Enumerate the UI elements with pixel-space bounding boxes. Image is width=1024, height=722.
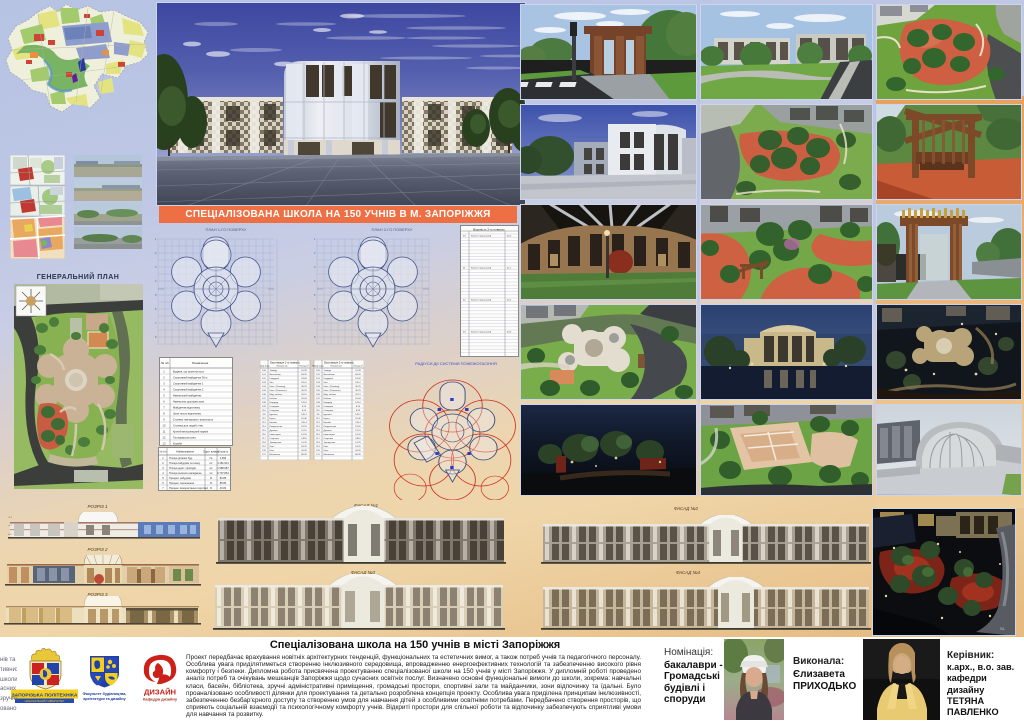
svg-text:10.20: 10.20 [355,434,361,436]
svg-text:20.15: 20.15 [355,394,361,396]
svg-text:2: 2 [314,252,316,255]
svg-text:Навчально-дослідна зона: Навчально-дослідна зона [173,399,204,403]
svg-text:Майданчик відпочинку: Майданчик відпочинку [173,405,201,409]
svg-text:Тамбур: Тамбур [270,370,278,372]
svg-text:Кабінет навчальний: Кабінет навчальний [471,235,492,238]
svg-text:Тамбур: Тамбур [324,370,332,372]
svg-text:145.2: 145.2 [355,414,361,416]
svg-text:Навчальний майданчик: Навчальний майданчик [173,393,202,397]
svg-text:54.20: 54.20 [355,446,361,448]
svg-text:Клумби: Клумби [173,441,183,445]
svg-text:Кабінет: Кабінет [324,397,332,400]
svg-text:Клас. (Логопед): Клас. (Логопед) [324,386,340,388]
svg-text:14.25: 14.25 [301,442,307,444]
svg-text:1 988.987: 1 988.987 [217,466,229,470]
svg-text:Їдальня: Їдальня [270,413,279,416]
svg-text:Клас. (Психолог): Клас. (Психолог) [270,390,287,392]
svg-text:Вестибюль: Вестибюль [270,374,282,376]
svg-text:7: 7 [314,322,316,325]
svg-text:84.26: 84.26 [355,374,361,376]
svg-text:Площа забудови по класу: Площа забудови по класу [169,461,201,465]
svg-text:7: 7 [155,322,157,325]
svg-text:52.40: 52.40 [355,418,361,420]
svg-text:+8.2: +8.2 [8,517,13,519]
svg-text:Їдальня: Їдальня [324,413,333,416]
svg-text:4 481.913: 4 481.913 [217,461,229,465]
svg-text:36.25: 36.25 [301,386,307,388]
svg-text:Факультет будівництва,: Факультет будівництва, [83,692,127,696]
svg-text:Санвузол: Санвузол [270,406,280,408]
svg-text:1: 1 [155,238,157,241]
svg-text:Роздягальня: Роздягальня [270,426,284,428]
svg-text:12.15: 12.15 [355,430,361,432]
svg-text:1: 1 [314,238,316,241]
svg-text:Процент забудови: Процент забудови [169,476,192,480]
svg-text:Інвентарна: Інвентарна [270,434,282,436]
svg-text:24.00: 24.00 [301,378,307,380]
svg-text:ДИЗАЙН: ДИЗАЙН [144,688,176,697]
svg-text:Площа доріг і проїздів: Площа доріг і проїздів [169,466,196,470]
svg-text:5: 5 [155,294,157,297]
svg-text:Площа зелених насаджень: Площа зелених насаджень [169,471,202,475]
svg-text:40.84: 40.84 [220,486,227,490]
svg-text:Басейн: Басейн [324,421,332,424]
svg-text:Стоянка для людей з інв.: Стоянка для людей з інв. [173,423,204,427]
svg-text:125.6: 125.6 [301,402,307,404]
svg-text:Найменування: Найменування [176,450,194,454]
svg-text:14.25: 14.25 [355,442,361,444]
svg-text:Бібліотека: Бібліотека [270,453,281,456]
svg-text:148.6: 148.6 [355,438,361,440]
svg-text:Спортивний майданчик 36 м: Спортивний майданчик 36 м [173,375,207,379]
svg-text:54.20: 54.20 [355,450,361,452]
svg-text:9 707.864: 9 707.864 [217,471,229,475]
svg-text:Санвузол: Санвузол [324,406,334,408]
svg-text:Спортивний майданчик 1: Спортивний майданчик 1 [173,381,204,385]
svg-text:Гардероб: Гардероб [324,378,334,380]
svg-text:8: 8 [155,336,157,339]
svg-text:Коридор: Коридор [324,402,333,404]
svg-text:54.20: 54.20 [301,446,307,448]
svg-text:4: 4 [314,280,316,283]
svg-text:1,992: 1,992 [220,456,227,460]
svg-text:3: 3 [155,266,157,269]
svg-text:216.4: 216.4 [355,422,361,424]
svg-text:Інвентарна: Інвентарна [324,434,336,436]
svg-text:84.26: 84.26 [301,374,307,376]
svg-text:Мед. кабінет: Мед. кабінет [324,393,337,396]
svg-text:Тренерська: Тренерська [270,442,283,444]
svg-text:125.6: 125.6 [355,402,361,404]
svg-text:Процент озеленення: Процент озеленення [169,481,195,485]
svg-text:86.45: 86.45 [355,454,361,456]
svg-text:16.28: 16.28 [301,370,307,372]
svg-text:216.4: 216.4 [301,422,307,424]
svg-text:3: 3 [314,266,316,269]
svg-text:148.6: 148.6 [301,438,307,440]
svg-text:Клас. (Логопед): Клас. (Логопед) [270,386,286,388]
svg-text:86.45: 86.45 [301,454,307,456]
svg-text:Будівля, що проектується: Будівля, що проектується [173,369,204,373]
svg-text:Номер прим.: Номер прим. [260,366,270,368]
svg-text:85.80: 85.80 [220,481,227,485]
svg-text:Спортзал: Спортзал [270,438,280,440]
svg-text:Санвузол: Санвузол [270,410,280,412]
svg-text:Позначення: Позначення [276,366,287,368]
svg-text:Площа ділянки буд.: Площа ділянки буд. [169,456,193,460]
svg-text:Експлікація 1-го поверху: Експлікація 1-го поверху [270,361,300,365]
svg-text:145.2: 145.2 [301,414,307,416]
svg-text:Площа м²: Площа м² [299,365,308,368]
svg-text:Стоянка тимчасового транспорту: Стоянка тимчасового транспорту [173,417,214,421]
svg-text:18.44: 18.44 [355,398,361,400]
svg-text:НАЦІОНАЛЬНИЙ УНІВЕРСИТЕТ: НАЦІОНАЛЬНИЙ УНІВЕРСИТЕТ [25,699,65,703]
svg-text:Номер прим.: Номер прим. [312,366,324,368]
svg-text:18.20: 18.20 [355,426,361,428]
svg-text:6: 6 [314,308,316,311]
svg-text:Кількість: Кількість [218,450,229,454]
svg-text:Кабінет: Кабінет [270,397,278,400]
svg-text:36.25: 36.25 [355,390,361,392]
svg-text:Тренерська: Тренерська [324,442,337,444]
svg-text:Зона тихого відпочинку: Зона тихого відпочинку [173,411,202,415]
svg-text:4: 4 [155,280,157,283]
svg-text:№ з/п: № з/п [160,450,167,454]
svg-text:Роздягальня: Роздягальня [324,426,338,428]
svg-text:Мед. кабінет: Мед. кабінет [270,393,283,396]
svg-text:Кабінет навчальний: Кабінет навчальний [471,267,492,270]
svg-text:м²: м² [210,467,213,470]
svg-text:16.28: 16.28 [355,370,361,372]
svg-text:Гардероб: Гардероб [270,378,280,380]
svg-text:Вестибюль: Вестибюль [324,374,336,376]
svg-text:Кухня: Кухня [324,418,331,420]
svg-text:Позначення: Позначення [192,361,209,365]
svg-text:Коридор: Коридор [270,402,279,404]
svg-text:105.2: 105.2 [301,382,307,384]
svg-text:6: 6 [155,308,157,311]
svg-text:18.20: 18.20 [301,426,307,428]
svg-text:54.20: 54.20 [301,450,307,452]
svg-text:36.25: 36.25 [301,390,307,392]
svg-text:Спортзал: Спортзал [324,438,334,440]
svg-text:2: 2 [155,252,157,255]
svg-text:архітектури та дизайну: архітектури та дизайну [83,697,126,701]
svg-text:Площа м²: Площа м² [353,365,362,368]
svg-text:Експлікація 2-го поверху: Експлікація 2-го поверху [324,361,354,365]
svg-text:105.2: 105.2 [355,382,361,384]
svg-text:12.15: 12.15 [301,430,307,432]
svg-text:ЗАПОРІЗЬКА ПОЛІТЕХНІКА: ЗАПОРІЗЬКА ПОЛІТЕХНІКА [12,693,78,699]
svg-text:36.25: 36.25 [355,386,361,388]
svg-text:Басейн: Басейн [270,421,278,424]
svg-text:Душова: Душова [324,430,333,432]
svg-text:5: 5 [314,294,316,297]
svg-text:Позначення: Позначення [330,366,341,368]
svg-text:Кухня: Кухня [270,418,277,420]
svg-text:Кафедра дизайну: Кафедра дизайну [143,697,178,702]
svg-text:10.20: 10.20 [301,434,307,436]
svg-text:Кабінет навчальний: Кабінет навчальний [471,331,492,334]
svg-text:8: 8 [314,336,316,339]
svg-text:Клас. (Психолог): Клас. (Психолог) [324,390,341,392]
svg-text:SL: SL [1000,626,1006,631]
svg-text:Санвузол: Санвузол [324,410,334,412]
svg-text:Душова: Душова [270,430,279,432]
svg-text:Спортивний майданчик 2: Спортивний майданчик 2 [173,387,204,391]
svg-text:80.85: 80.85 [220,476,227,480]
svg-text:20.15: 20.15 [301,394,307,396]
svg-text:м²: м² [210,462,213,465]
svg-text:м²: м² [210,472,213,475]
svg-text:24.00: 24.00 [355,378,361,380]
svg-text:Бібліотека: Бібліотека [324,453,335,456]
svg-text:Господарська зона: Господарська зона [173,435,196,439]
svg-text:Кабінет навчальний: Кабінет навчальний [471,299,492,302]
svg-text:52.40: 52.40 [301,418,307,420]
svg-text:18.44: 18.44 [301,398,307,400]
svg-text:Критий велосипедний паркінг: Критий велосипедний паркінг [173,429,208,433]
svg-text:№ з/п: № з/п [161,361,169,365]
svg-text:Процент використання території: Процент використання території [169,486,208,490]
